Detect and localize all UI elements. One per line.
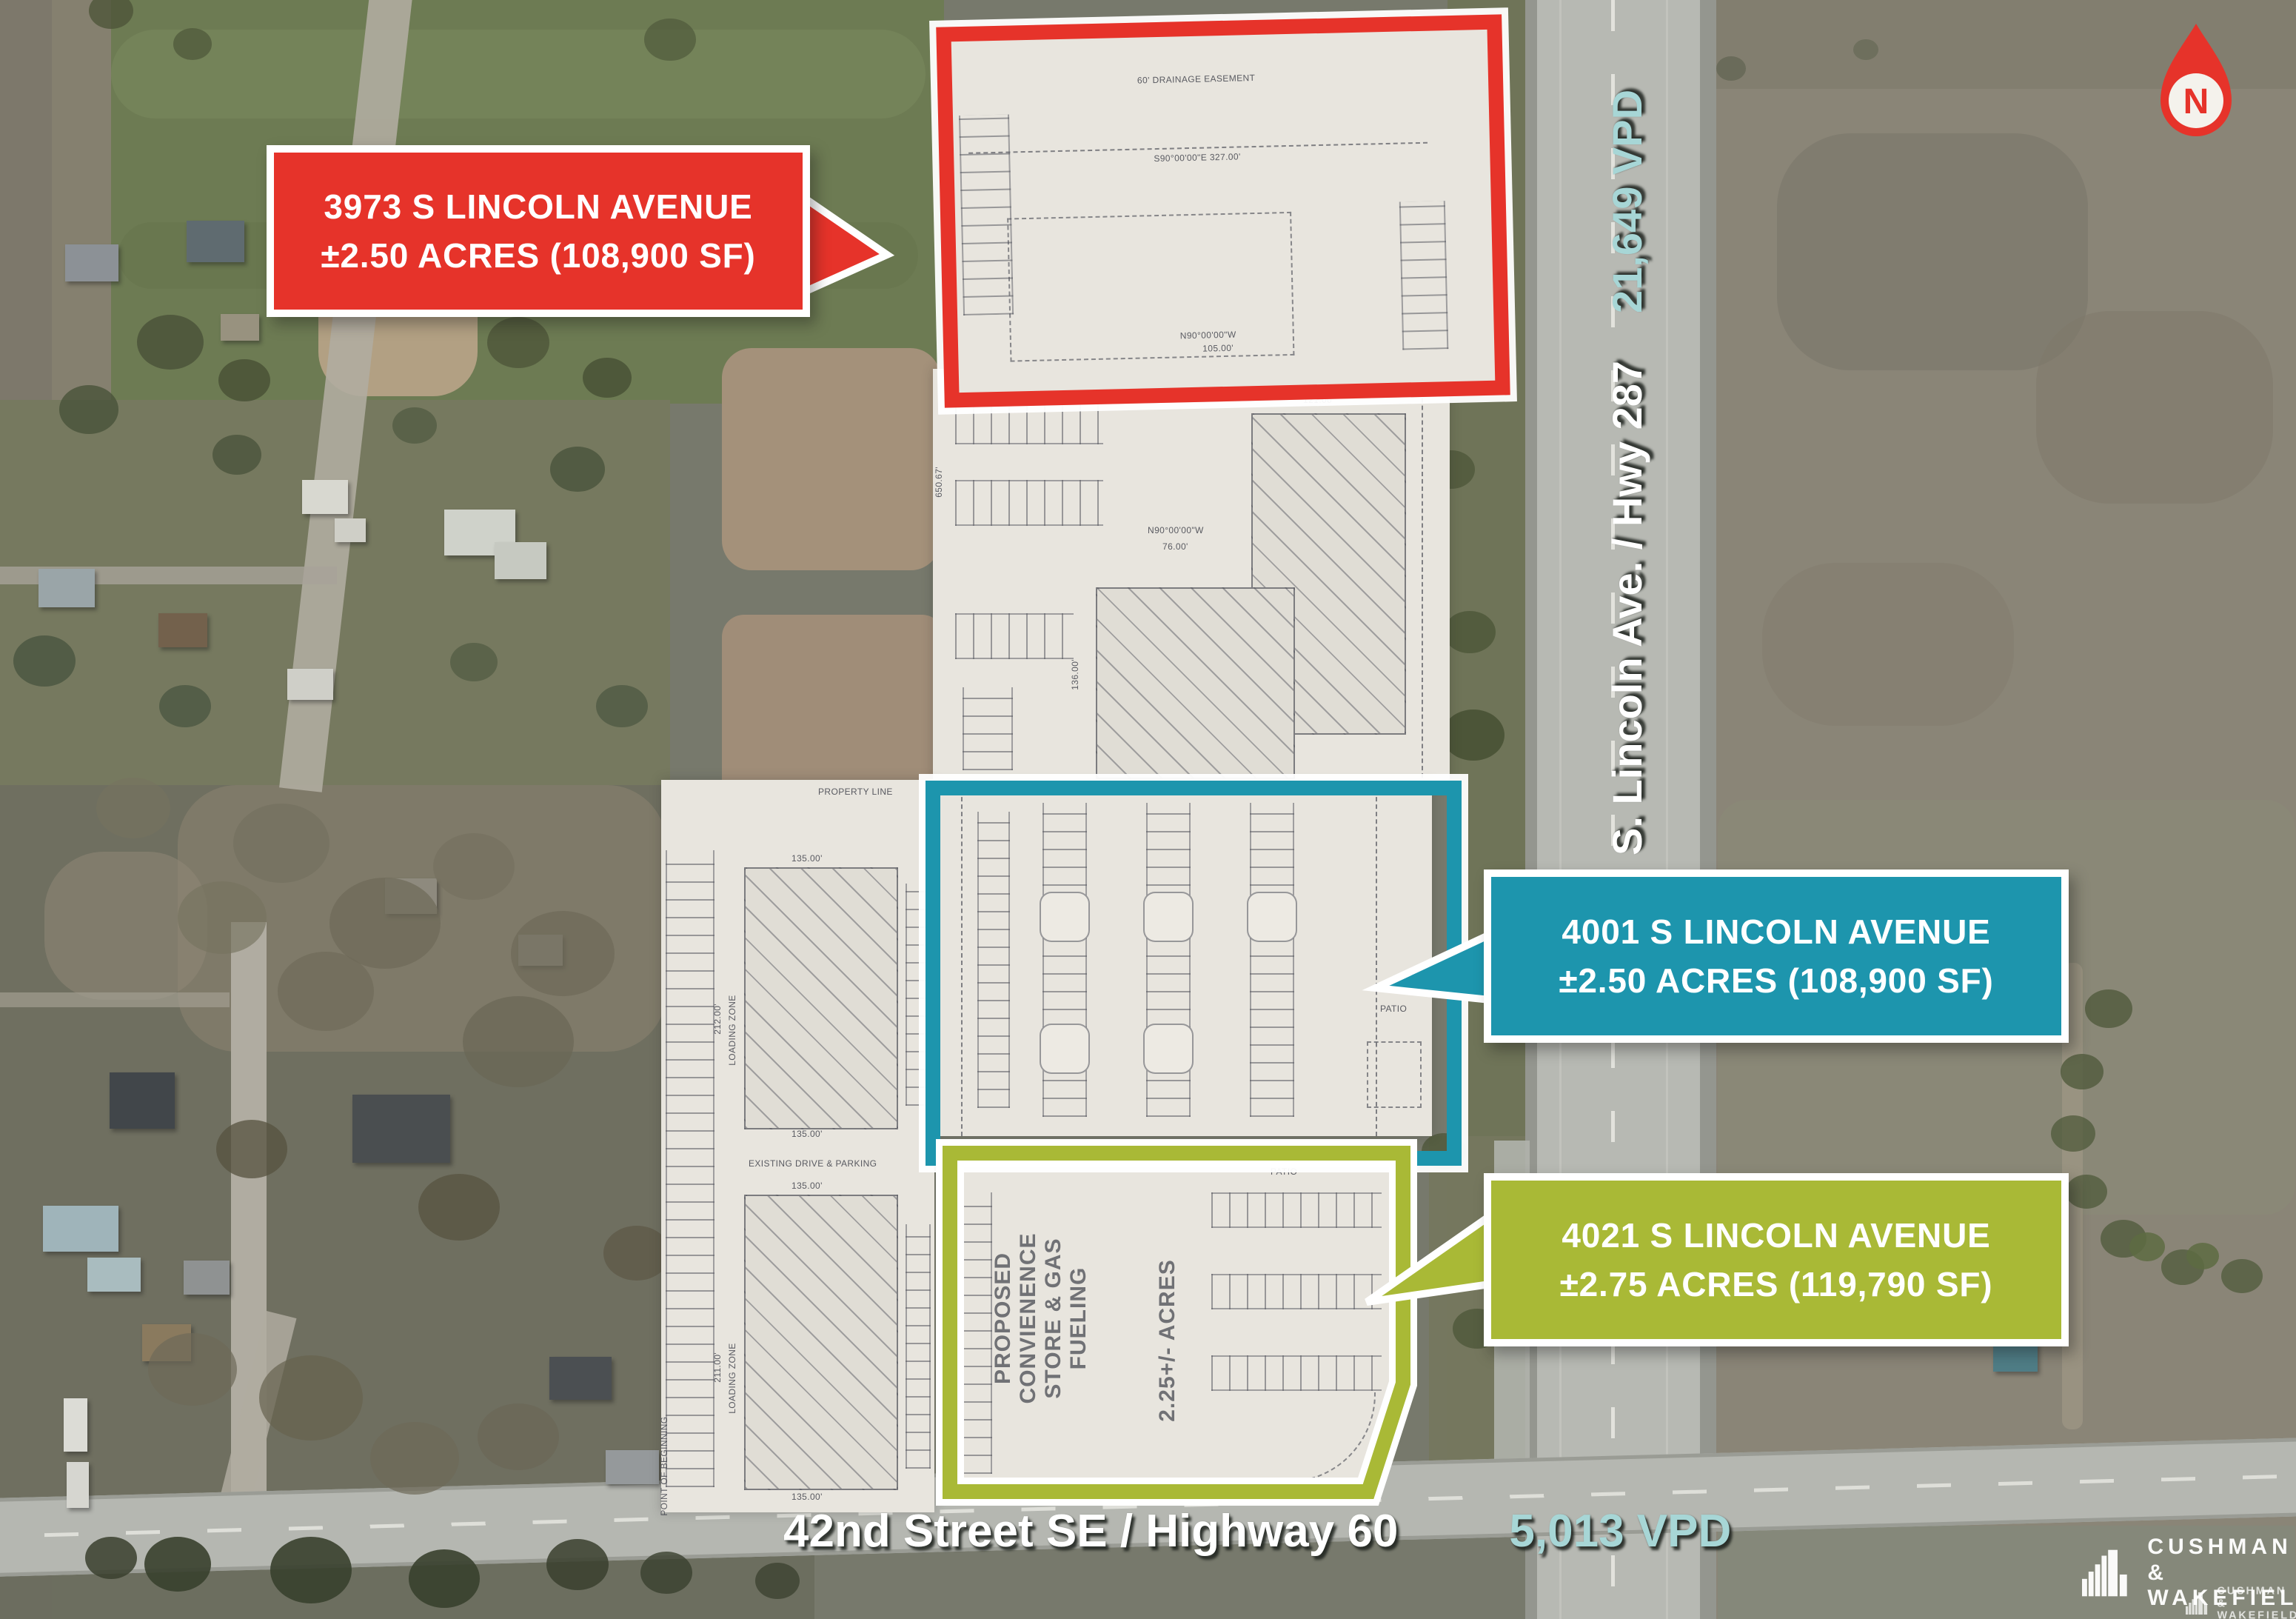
callout-3973-s-lincoln: 3973 S LINCOLN AVENUE ±2.50 ACRES (108,9… <box>267 145 810 317</box>
tree-blob <box>89 0 133 29</box>
warehouse-building-hatch <box>744 867 898 1129</box>
cw-building-icon <box>2082 1549 2135 1597</box>
tree-blob <box>2186 1243 2219 1269</box>
proposed-acres-text: 2.25+/- ACRES <box>1155 1237 1182 1444</box>
road-label-42nd-street: 42nd Street SE / Highway 60 5,013 VPD <box>783 1505 1731 1558</box>
tree-blob <box>2061 1054 2103 1089</box>
callout-4021-s-lincoln: 4021 S LINCOLN AVENUE ±2.75 ACRES (119,7… <box>1484 1173 2069 1346</box>
tree-blob <box>1716 56 1746 81</box>
parking-stripes <box>1399 201 1449 350</box>
tree-blob <box>85 1537 137 1579</box>
tree-blob <box>148 1333 237 1406</box>
tree-blob <box>216 1120 287 1178</box>
callout-size: ±2.75 ACRES (119,790 SF) <box>1560 1264 1993 1304</box>
tree-blob <box>270 1537 352 1603</box>
cw-logo-line1: CUSHMAN & <box>2217 1585 2296 1609</box>
parking-stripes <box>1211 1192 1382 1228</box>
tree-blob <box>2066 1175 2107 1209</box>
tree-blob <box>218 359 270 401</box>
plan-label: POINT OF BEGINNING <box>660 1420 670 1516</box>
cw-logo-line1: CUSHMAN & <box>2147 1535 2296 1586</box>
parking-stripes <box>963 687 1013 770</box>
tree-blob <box>13 635 76 687</box>
parking-stripes <box>959 115 1014 316</box>
tree-blob <box>596 685 648 727</box>
plan-label: LOADING ZONE <box>728 977 738 1066</box>
parking-stripes <box>955 613 1074 659</box>
tree-blob <box>392 407 437 444</box>
plan-dim-label: 76.00' <box>1162 542 1188 553</box>
tree-blob <box>418 1174 500 1241</box>
tree-blob <box>178 881 267 954</box>
site-plan-green-parcel: PROPOSED CONVIENENCE STORE & GAS FUELING… <box>945 1148 1404 1499</box>
callout-size: ±2.50 ACRES (108,900 SF) <box>1559 961 1993 1001</box>
tree-blob <box>233 804 329 883</box>
tree-blob <box>487 317 549 368</box>
aerial-site-map: N90°00'00"W 121.00' N90°00'00"W 76.00' 1… <box>0 0 2296 1619</box>
tree-blob <box>137 315 204 370</box>
tree-blob <box>640 1552 692 1594</box>
parking-stripes <box>960 1192 992 1474</box>
parking-stripes <box>666 850 714 1487</box>
tree-blob <box>1853 39 1878 60</box>
parking-stripes <box>955 480 1103 526</box>
plan-dim-label: N90°00'00"W <box>1180 330 1236 342</box>
tree-blob <box>173 28 212 60</box>
road-name-lincoln: S. Lincoln Ave. / Hwy 287 <box>1603 361 1651 855</box>
tree-blob <box>259 1355 363 1441</box>
tree-blob <box>370 1422 459 1495</box>
plan-label: 60' DRAINAGE EASEMENT <box>1137 73 1256 86</box>
plan-dim-label: 135.00' <box>791 1492 823 1503</box>
plan-dim-label: 135.00' <box>791 1181 823 1192</box>
plan-dim-label: 211.00' <box>713 1316 723 1383</box>
plan-label: PATIO <box>1271 1167 1297 1178</box>
existing-building-hatch <box>1096 587 1295 779</box>
cushman-wakefield-logo-small: CUSHMAN & WAKEFIELD <box>2186 1585 2296 1619</box>
tree-blob <box>433 833 515 900</box>
north-arrow-icon: N <box>2140 21 2252 158</box>
vpd-count-42nd: 5,013 VPD <box>1509 1505 1731 1558</box>
callout-address: 4001 S LINCOLN AVENUE <box>1562 912 1990 952</box>
parcel-outline-4001 <box>926 781 1462 1166</box>
parking-stripes <box>1211 1355 1382 1391</box>
cw-logo-line2: WAKEFIELD <box>2217 1609 2296 1619</box>
building-pad-dash <box>1007 212 1294 362</box>
callout-4001-s-lincoln: 4001 S LINCOLN AVENUE ±2.50 ACRES (108,9… <box>1484 869 2069 1043</box>
parking-stripes <box>906 1224 931 1469</box>
tree-blob <box>144 1537 211 1592</box>
tree-blob <box>2221 1259 2263 1293</box>
tree-blob <box>278 952 374 1031</box>
tree-blob <box>2085 989 2132 1028</box>
cw-logo-text: CUSHMAN & WAKEFIELD <box>2217 1585 2296 1619</box>
tree-blob <box>450 643 498 681</box>
tree-blob <box>1442 710 1505 761</box>
tree-blob <box>755 1563 800 1599</box>
tree-blob <box>212 435 261 475</box>
plan-dim-label: 135.00' <box>791 854 823 864</box>
plan-dim-label: 135.00' <box>791 1129 823 1140</box>
plan-dim-label: 136.00' <box>1071 631 1081 690</box>
tree-blob <box>1444 611 1496 653</box>
site-plan-left: PROPERTY LINE 135.00' 135.00' 212.00' LO… <box>661 780 934 1512</box>
proposed-store-line: STORE & GAS FUELING <box>1041 1185 1091 1452</box>
plan-dim-label: 212.00' <box>713 968 723 1035</box>
plan-dim-label: 650.67' <box>934 438 945 498</box>
callout-size: ±2.50 ACRES (108,900 SF) <box>321 236 755 276</box>
tree-blob <box>409 1549 480 1608</box>
callout-address: 4021 S LINCOLN AVENUE <box>1562 1215 1990 1255</box>
warehouse-building-hatch <box>744 1195 898 1490</box>
plan-dim-label: 105.00' <box>1202 344 1234 355</box>
tree-blob <box>463 996 574 1087</box>
parking-stripes <box>1211 1274 1382 1309</box>
plan-dim-label: N90°00'00"W <box>1148 526 1204 536</box>
proposed-store-line: PROPOSED <box>991 1185 1016 1452</box>
tree-blob <box>511 911 615 996</box>
tree-blob <box>59 385 118 434</box>
site-plan-middle: N90°00'00"W 121.00' N90°00'00"W 76.00' 1… <box>933 369 1450 785</box>
tree-blob <box>546 1539 609 1590</box>
plan-label: LOADING ZONE <box>728 1325 738 1414</box>
road-label-lincoln-ave: S. Lincoln Ave. / Hwy 287 21,649 VPD <box>1586 26 1667 855</box>
tree-blob <box>2129 1232 2165 1261</box>
parcel-outline-3973: 60' DRAINAGE EASEMENT S90°00'00"E 327.00… <box>936 14 1510 407</box>
tree-blob <box>96 778 170 838</box>
north-letter: N <box>2183 82 2209 121</box>
plan-boundary-dash <box>1422 369 1423 785</box>
vpd-count-lincoln: 21,649 VPD <box>1603 90 1651 313</box>
cw-building-icon <box>2186 1592 2212 1615</box>
tree-blob <box>478 1403 559 1470</box>
tree-blob <box>159 685 211 727</box>
tree-blob <box>583 358 632 398</box>
drive-curve-dash <box>1226 1392 1376 1483</box>
plan-dim-label: S90°00'00"E 327.00' <box>1154 152 1241 164</box>
tree-blob <box>603 1226 670 1281</box>
plan-label: PROPERTY LINE <box>818 787 893 798</box>
tree-blob <box>2051 1115 2095 1152</box>
road-name-42nd: 42nd Street SE / Highway 60 <box>783 1505 1398 1558</box>
plan-bearing-label: N89°25'08"W 105.03' <box>1204 1477 1293 1487</box>
tree-blob <box>644 19 696 61</box>
tree-blob <box>550 447 605 492</box>
plan-label: EXISTING DRIVE & PARKING <box>749 1159 877 1169</box>
proposed-store-line: CONVIENENCE <box>1016 1185 1041 1452</box>
proposed-store-text: PROPOSED CONVIENENCE STORE & GAS FUELING <box>991 1185 1066 1452</box>
callout-address: 3973 S LINCOLN AVENUE <box>324 187 752 227</box>
